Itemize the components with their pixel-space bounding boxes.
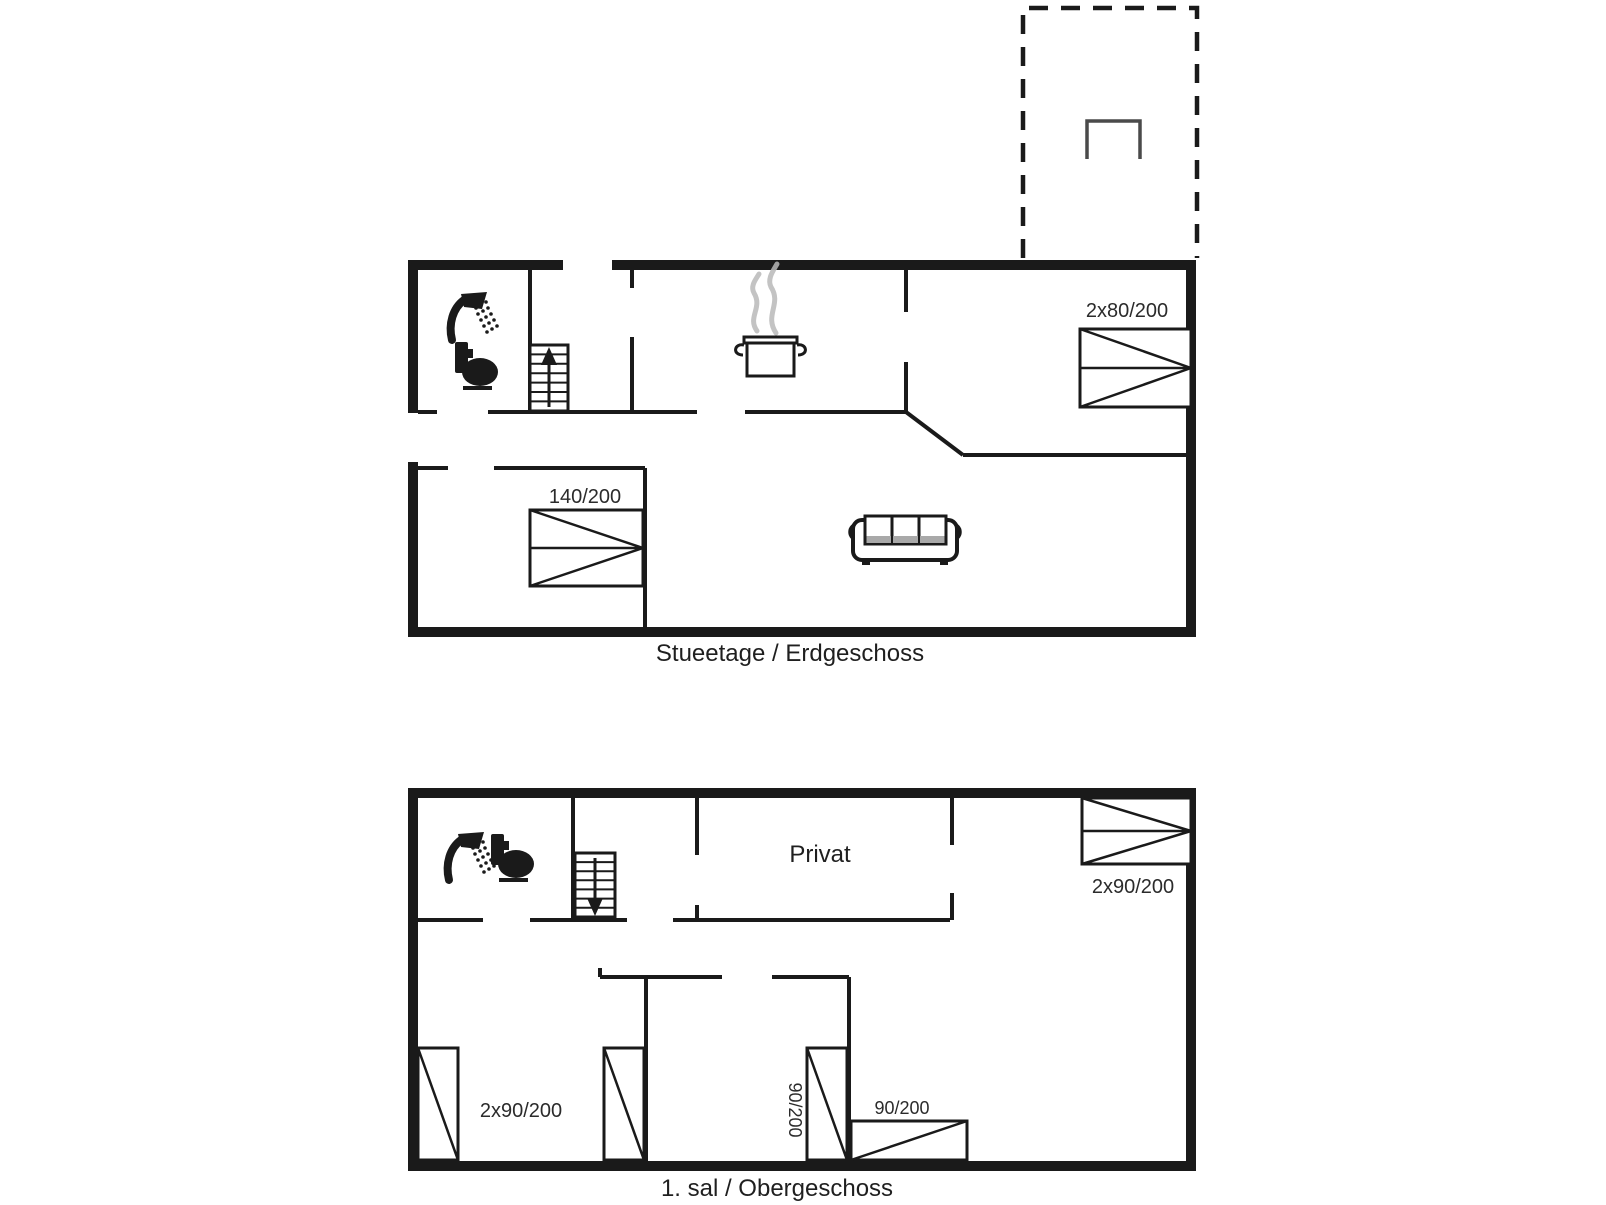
sofa-icon — [850, 516, 960, 565]
shower-icon — [448, 832, 496, 880]
first-floor-plan: Privat 2x90/200 2x90/200 90/200 90/200 — [408, 788, 1196, 1202]
double-bed-icon — [530, 510, 643, 586]
table-icon — [1087, 121, 1140, 159]
bed-label-90-vertical: 90/200 — [785, 1082, 805, 1137]
single-bed-icon — [807, 1048, 847, 1160]
bed-label-2x90-top: 2x90/200 — [1092, 876, 1174, 898]
bed-label-140: 140/200 — [549, 486, 621, 508]
ground-floor-caption: Stueetage / Erdgeschoss — [656, 640, 924, 667]
terrace-outline — [1023, 8, 1197, 258]
single-bed-icon — [418, 1048, 458, 1160]
shower-icon — [451, 292, 499, 340]
ground-floor-plan: 2x80/200 140/200 Stueetage / Erdgeschoss — [408, 260, 1196, 667]
toilet-icon — [491, 834, 534, 882]
double-bed-icon — [1080, 329, 1191, 407]
terrace-dashed-border — [1023, 8, 1197, 258]
single-bed-icon — [851, 1121, 967, 1160]
floor-plan-page: 2x80/200 140/200 Stueetage / Erdgeschoss — [0, 0, 1606, 1205]
bed-label-90-horizontal: 90/200 — [874, 1098, 929, 1118]
toilet-icon — [455, 342, 498, 390]
double-bed-icon — [1082, 798, 1191, 864]
stairs-up-icon — [530, 345, 568, 411]
bed-label-2x90-twin: 2x90/200 — [480, 1100, 562, 1122]
bed-label-2x80: 2x80/200 — [1086, 300, 1168, 322]
first-floor-caption: 1. sal / Obergeschoss — [661, 1175, 893, 1202]
cooking-pot-icon — [736, 264, 806, 376]
ground-outer-walls — [408, 260, 1196, 632]
stairs-down-icon — [575, 853, 615, 917]
single-bed-icon — [604, 1048, 644, 1160]
room-label-privat: Privat — [789, 841, 851, 868]
